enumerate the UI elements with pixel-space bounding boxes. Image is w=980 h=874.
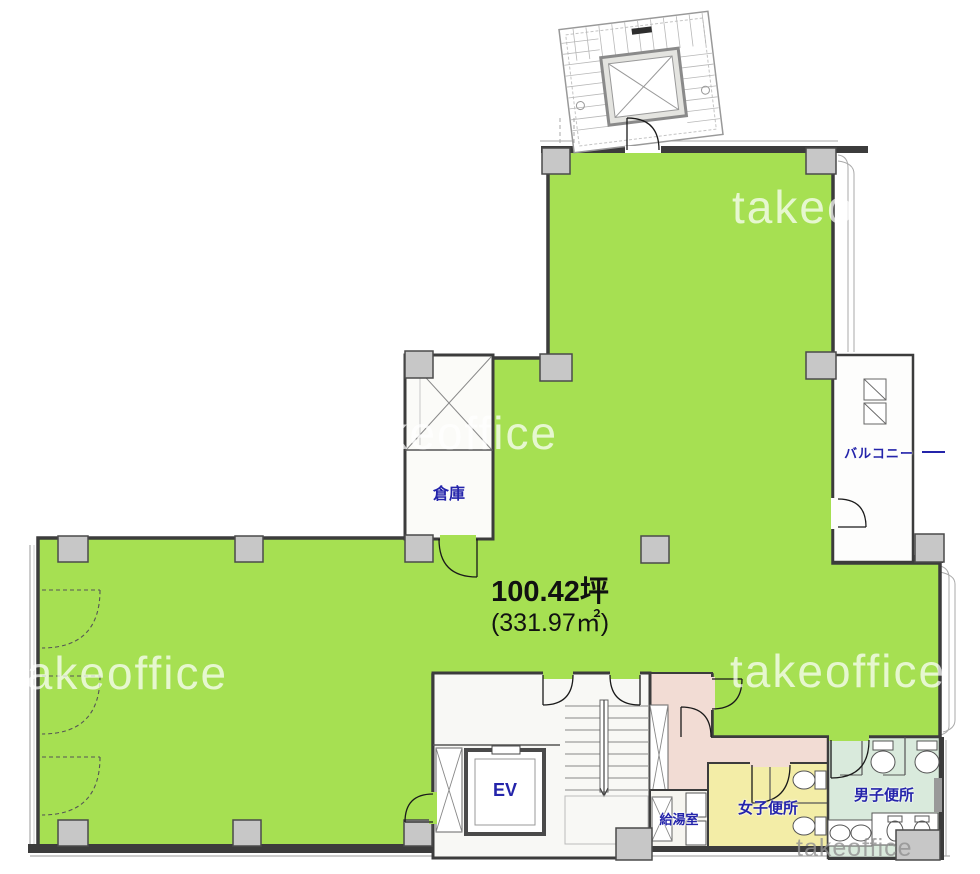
room-label-mens-toilet: 男子便所 <box>834 784 934 805</box>
floor-plan-page: 100.42坪 (331.97㎡) 倉庫 バルコニー EV 給湯室 女子便所 男… <box>0 0 980 874</box>
storage-room <box>405 355 493 539</box>
room-label-kitchenette: 給湯室 <box>645 809 713 828</box>
room-label-womens-toilet: 女子便所 <box>710 797 826 818</box>
stairwell <box>559 11 723 152</box>
room-label-warehouse: 倉庫 <box>403 480 495 504</box>
area-sqm-label: (331.97㎡) <box>420 603 680 639</box>
room-label-balcony: バルコニー <box>836 443 922 462</box>
room-label-elevator: EV <box>466 780 544 801</box>
floor-plan-drawing <box>0 0 980 874</box>
